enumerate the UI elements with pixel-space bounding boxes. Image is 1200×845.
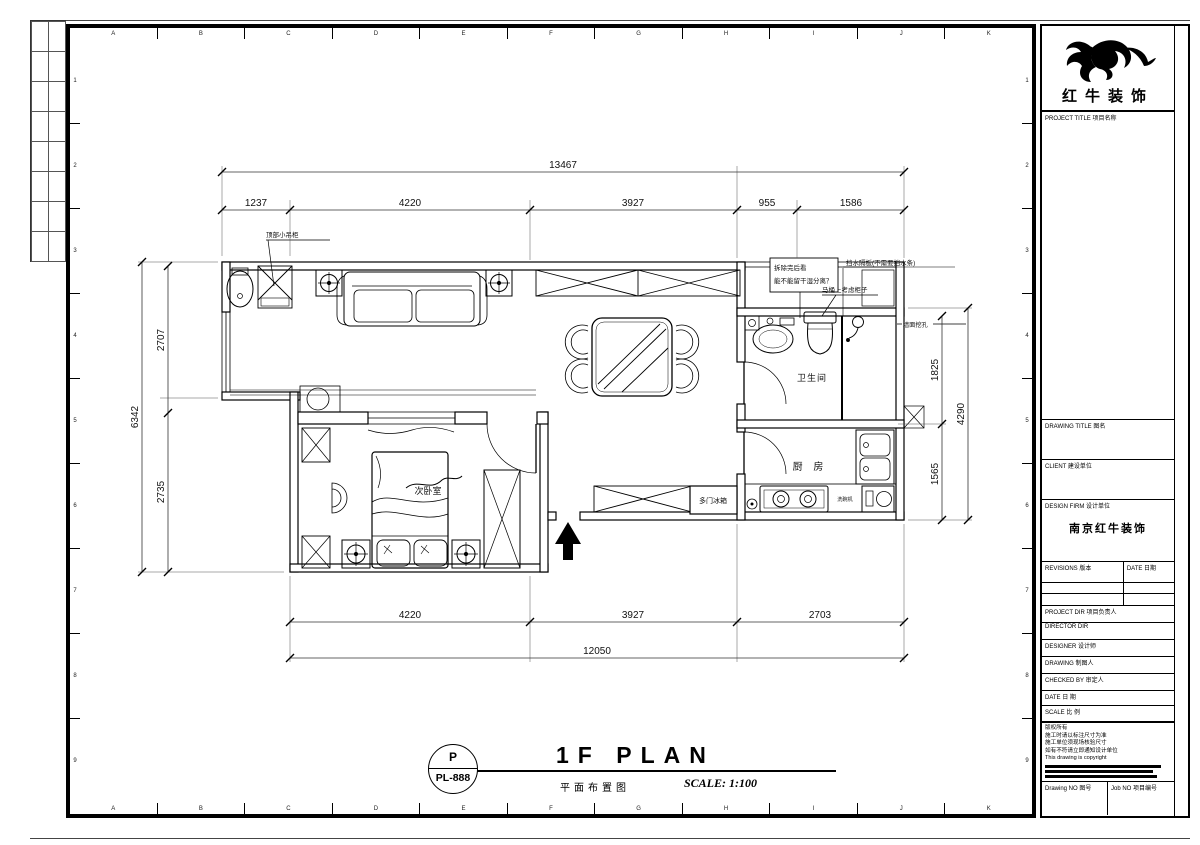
room-labels: 卫生间 厨 房 次卧室 洗碗机 [406, 372, 854, 503]
toilet-cabinet-note: 马桶上考虑柜子 [822, 285, 868, 294]
date-label: DATE 日 期 [1045, 695, 1076, 701]
gas-point-dot [751, 503, 754, 506]
bathroom-label: 卫生间 [797, 372, 827, 383]
drawing-title-label: DRAWING TITLE 图名 [1045, 424, 1105, 430]
kitchen-label: 厨 房 [793, 460, 828, 473]
dimension-lines [138, 166, 972, 662]
dim: 2703 [809, 610, 832, 621]
vanity-cabinet [258, 266, 292, 308]
bathroom-sink [745, 316, 794, 353]
wash-basin [227, 268, 253, 307]
bed [372, 452, 448, 568]
dim: 3927 [622, 198, 645, 209]
wall-hole-note: 墙面挖孔 [903, 321, 928, 329]
drawing-sheet: ABCDEFGHIJK ABCDEFGHIJK 123456789 123456… [0, 0, 1200, 845]
dim: 2735 [156, 480, 167, 503]
revisions-date-label: DATE 日期 [1124, 562, 1174, 583]
window-bedroom [368, 412, 455, 434]
window-left [222, 312, 230, 392]
design-firm-name: 南京红牛装饰 [1045, 520, 1171, 536]
dim: 1237 [245, 198, 268, 209]
drawing-no-label: Drawing NO 图号 [1045, 786, 1091, 792]
revisions-table: REVISIONS 版本 DATE 日期 [1042, 562, 1174, 606]
sheet-number: PL-888 [429, 768, 477, 790]
copyright-notes: 版权所有 施工时请以标注尺寸为准 施工单位须现场核验尺寸 如有不符请立即通知设计… [1042, 722, 1174, 782]
toilet [804, 312, 836, 354]
dim: 955 [759, 198, 776, 209]
checked-by-label: CHECKED BY 审定人 [1045, 678, 1104, 684]
title-block-margin [1174, 26, 1188, 816]
bay-lamp [332, 483, 347, 513]
hall-cabinet [594, 486, 692, 512]
water-heater [862, 486, 894, 512]
bathroom-door [744, 362, 786, 404]
top-wardrobe [536, 270, 740, 296]
sheet-number-bubble: P PL-888 [428, 744, 478, 794]
speaker-box [486, 270, 512, 296]
stove [760, 486, 828, 512]
dim: 1825 [930, 358, 941, 381]
sofa [337, 272, 487, 326]
demo-note-line1: 拆除完后看 [774, 263, 807, 272]
logo-area: 红牛装饰 [1042, 26, 1174, 112]
design-firm-label: DESIGN FIRM 设计单位 [1045, 504, 1110, 510]
sheet-scale: SCALE: 1:100 [684, 776, 757, 791]
project-dir-label: PROJECT DIR 项目负责人 [1045, 610, 1117, 616]
dishwasher-label: 洗碗机 [837, 495, 853, 503]
dim: 1586 [840, 198, 863, 209]
speaker-box [316, 270, 342, 296]
wardrobe [484, 470, 520, 568]
entry-arrow [555, 522, 581, 560]
dim: 4220 [399, 610, 422, 621]
dim-bottom-total: 12050 [583, 646, 611, 657]
sheet-number-top: P [429, 745, 477, 768]
windows [222, 262, 924, 513]
logo-text: 红牛装饰 [1062, 85, 1154, 106]
floor-plan: 多门冰箱 卫生间 厨 房 次卧室 洗碗机 顶部小吊柜 拆除完后看 能不能留干湿分… [0, 0, 1200, 845]
bedroom-door [487, 424, 536, 473]
sheet-subtitle: 平面布置图 [560, 779, 630, 794]
illegible-text [1045, 770, 1153, 773]
kitchen-door [744, 432, 786, 474]
note-line: This drawing is copyright [1045, 755, 1171, 763]
dim-right-total: 4290 [956, 402, 967, 425]
water-baffle-note: 挡水隔板(不需要挡水条) [846, 258, 915, 267]
dim-left-total: 6342 [130, 405, 141, 428]
walls [222, 262, 904, 572]
note-line: 施工单位须现场核验尺寸 [1045, 740, 1171, 748]
director-label: DIRECTOR DIR [1045, 624, 1088, 630]
bull-logo-icon [1060, 36, 1156, 84]
bedroom-label: 次卧室 [414, 485, 441, 496]
dim: 4220 [399, 198, 422, 209]
demo-note-line2: 能不能留干湿分离？ [774, 276, 833, 285]
project-title-label: PROJECT TITLE 项目名称 [1045, 116, 1116, 122]
shower-head [847, 317, 864, 342]
drawing-label: DRAWING 制图人 [1045, 661, 1093, 667]
pipe-shaft [904, 406, 924, 428]
title-block: 红牛装饰 PROJECT TITLE 项目名称 DRAWING TITLE 图名… [1040, 24, 1190, 818]
fridge-label: 多门冰箱 [699, 496, 727, 505]
top-cabinet-note: 顶部小吊柜 [266, 230, 299, 239]
number-row: Drawing NO 图号 Job NO 项目编号 [1042, 782, 1174, 815]
bedroom-closet-top [302, 428, 330, 462]
scale-label: SCALE 比 例 [1045, 710, 1080, 716]
dim: 3927 [622, 610, 645, 621]
kitchen-sink [856, 430, 894, 484]
dim-top-total: 13467 [549, 160, 577, 171]
dim: 2707 [156, 328, 167, 351]
note-line: 版权所有 [1045, 725, 1171, 733]
job-no-label: Job NO 项目编号 [1111, 786, 1157, 792]
client-label: CLIENT 建设单位 [1045, 464, 1092, 470]
designer-label: DESIGNER 设计师 [1045, 644, 1096, 650]
bedroom-closet-bottom [302, 536, 330, 568]
revisions-label: REVISIONS 版本 [1042, 562, 1124, 583]
sheet-title: 1F PLAN [556, 742, 715, 769]
illegible-text [1045, 765, 1161, 768]
dim: 1565 [930, 462, 941, 485]
illegible-text [1045, 775, 1157, 778]
note-line: 如有不符请立即通知设计单位 [1045, 748, 1171, 756]
dining-table [565, 318, 698, 396]
